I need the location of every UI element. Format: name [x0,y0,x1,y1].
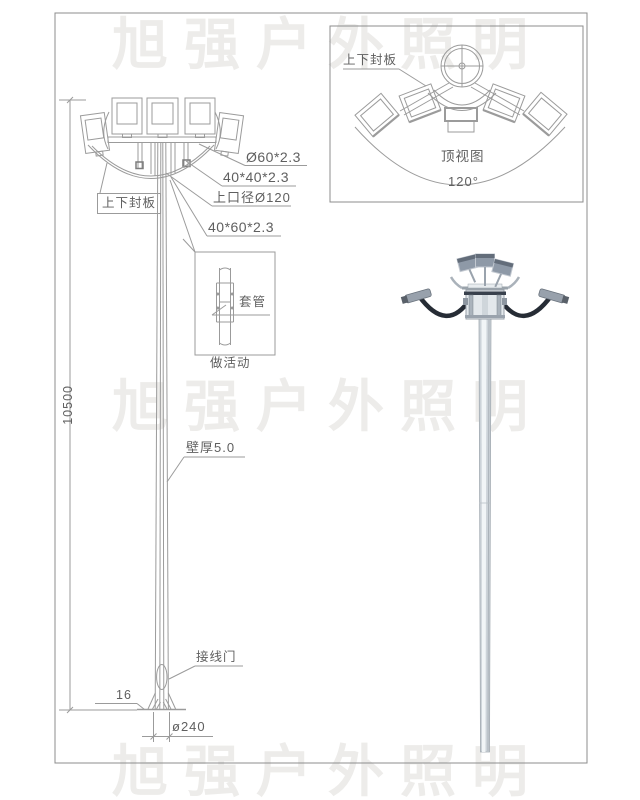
label-rect-tube: 40*60*2.3 [208,220,274,235]
drawing-frame [55,13,587,763]
label-sleeve: 套管 [239,296,266,310]
leader-lines [100,144,307,679]
pole-render [401,254,570,752]
label-seal-plate-topview: 上下封板 [343,54,397,68]
label-sleeve-caption: 做活动 [210,357,251,371]
label-base-plate: 16 [116,689,132,703]
label-pole-height: 10500 [62,383,76,427]
label-beam-angle: 120° [448,175,479,189]
label-seal-plate-front: 上下封板 [97,193,161,214]
drawing-page: 旭强户外照明 旭强户外照明 旭强户外照明 [0,0,640,800]
label-wiring-door: 接线门 [196,651,237,665]
seal-plate-front-text: 上下封板 [102,197,156,211]
cad-linework [0,0,640,800]
front-view-lamp-cluster [80,98,243,179]
label-topview-title: 顶视图 [441,150,485,165]
label-wall-thickness: 壁厚5.0 [186,441,235,455]
label-lamp-arm-tube: Ø60*2.3 [246,150,301,165]
label-square-tube: 40*40*2.3 [223,170,289,185]
label-top-opening: 上口径Ø120 [213,191,291,205]
front-view-pole [155,143,168,709]
label-base-diameter: ø240 [172,720,206,734]
